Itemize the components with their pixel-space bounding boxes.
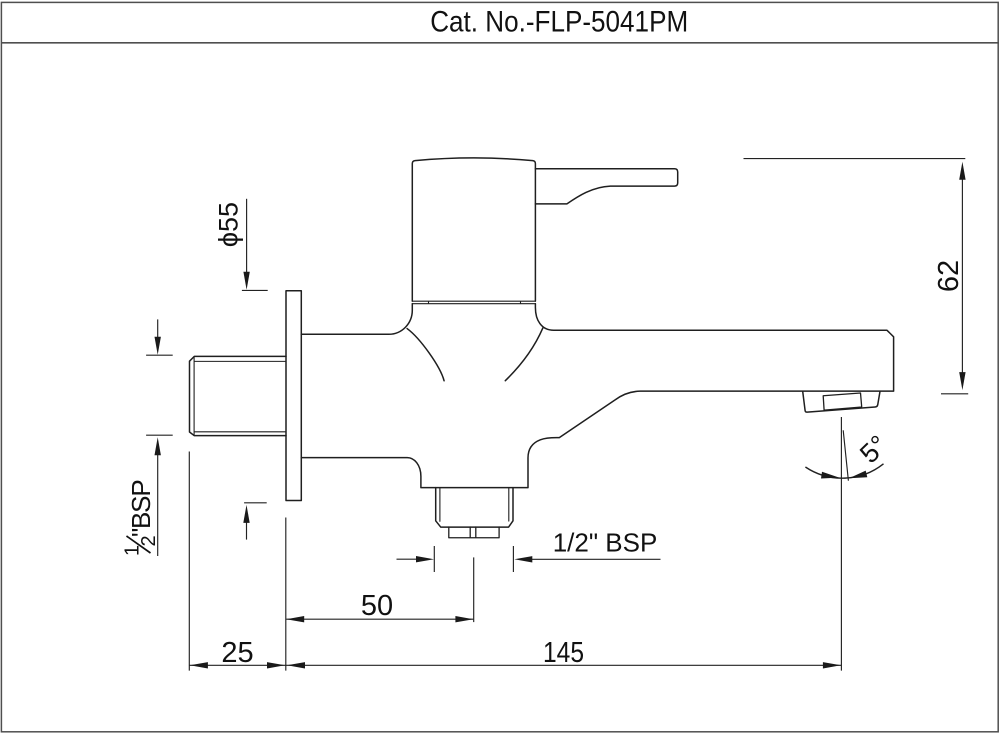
svg-text:Cat. No.-FLP-5041PM: Cat. No.-FLP-5041PM — [430, 6, 688, 39]
svg-text:62: 62 — [933, 260, 965, 292]
svg-text:"BSP: "BSP — [126, 481, 156, 537]
svg-text:145: 145 — [543, 637, 584, 669]
svg-text:50: 50 — [361, 590, 393, 622]
svg-text:ϕ55: ϕ55 — [214, 202, 244, 247]
svg-text:1/2" BSP: 1/2" BSP — [553, 528, 658, 558]
svg-text:25: 25 — [221, 637, 253, 669]
